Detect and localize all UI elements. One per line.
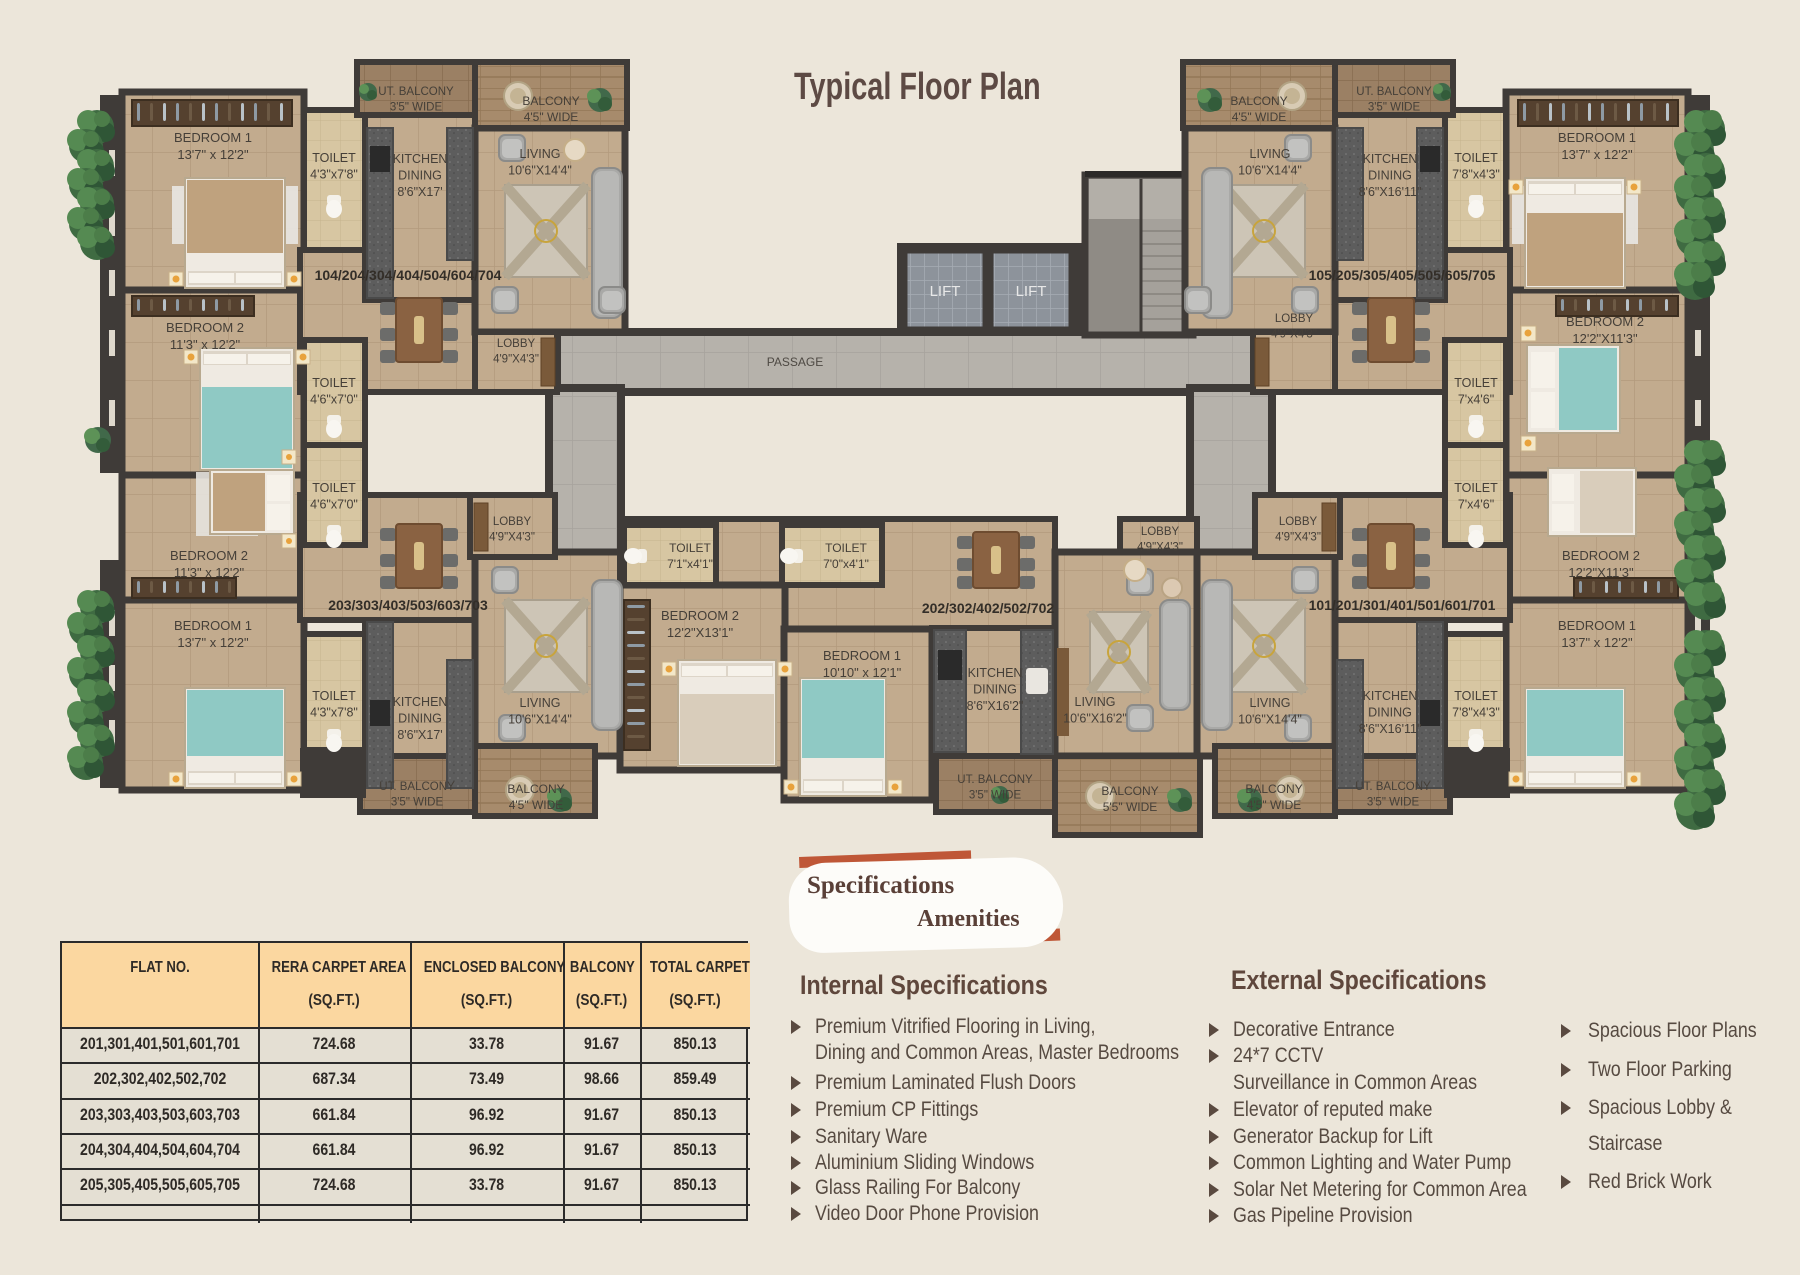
svg-text:TOILET: TOILET: [1454, 376, 1498, 390]
svg-text:202/302/402/502/702: 202/302/402/502/702: [922, 600, 1055, 616]
svg-text:13'7" x 12'2": 13'7" x 12'2": [1561, 147, 1633, 162]
svg-text:LIVING: LIVING: [520, 147, 561, 161]
svg-text:UT. BALCONY: UT. BALCONY: [957, 774, 1033, 786]
svg-text:5'5" WIDE: 5'5" WIDE: [1103, 800, 1158, 814]
svg-text:BALCONY: BALCONY: [1245, 782, 1302, 796]
svg-text:105/205/305/405/505/605/705: 105/205/305/405/505/605/705: [1309, 267, 1496, 283]
svg-text:4'9"X4'3": 4'9"X4'3": [1275, 532, 1321, 544]
svg-text:3'5" WIDE: 3'5" WIDE: [1367, 797, 1420, 809]
svg-text:7'8"x4'3": 7'8"x4'3": [1452, 168, 1500, 182]
svg-text:203/303/403/503/603/703: 203/303/403/503/603/703: [328, 597, 488, 613]
svg-text:10'6"X14'4": 10'6"X14'4": [1238, 164, 1302, 178]
svg-text:BALCONY: BALCONY: [1101, 784, 1158, 798]
svg-text:LIFT: LIFT: [930, 283, 961, 300]
svg-text:7'1"x4'1": 7'1"x4'1": [667, 557, 713, 571]
svg-text:4'9"X4'3": 4'9"X4'3": [1271, 329, 1317, 341]
svg-text:DINING: DINING: [1368, 706, 1412, 720]
svg-text:4'5" WIDE: 4'5" WIDE: [1232, 110, 1287, 124]
svg-text:LIFT: LIFT: [1016, 283, 1047, 300]
svg-text:DINING: DINING: [398, 169, 442, 183]
svg-text:DINING: DINING: [398, 712, 442, 726]
svg-text:4'3"x7'8": 4'3"x7'8": [310, 706, 358, 720]
svg-text:KITCHEN: KITCHEN: [393, 152, 448, 166]
svg-text:UT. BALCONY: UT. BALCONY: [379, 781, 455, 793]
svg-text:4'5" WIDE: 4'5" WIDE: [1247, 798, 1302, 812]
svg-text:BEDROOM 2: BEDROOM 2: [166, 320, 244, 335]
svg-text:7'x4'6": 7'x4'6": [1458, 498, 1494, 512]
svg-text:UT. BALCONY: UT. BALCONY: [378, 86, 454, 98]
svg-text:TOILET: TOILET: [312, 481, 356, 495]
svg-text:7'8"x4'3": 7'8"x4'3": [1452, 706, 1500, 720]
svg-text:3'5" WIDE: 3'5" WIDE: [1368, 102, 1421, 114]
svg-text:DINING: DINING: [973, 683, 1017, 697]
svg-text:KITCHEN: KITCHEN: [393, 695, 448, 709]
svg-text:4'3"x7'8": 4'3"x7'8": [310, 168, 358, 182]
svg-text:4'9"X4'3": 4'9"X4'3": [489, 532, 535, 544]
svg-text:10'6"X14'4": 10'6"X14'4": [1238, 713, 1302, 727]
svg-text:TOILET: TOILET: [669, 541, 711, 555]
svg-text:4'9"X4'3": 4'9"X4'3": [1137, 542, 1183, 554]
svg-text:LIVING: LIVING: [1250, 696, 1291, 710]
svg-text:3'5" WIDE: 3'5" WIDE: [969, 790, 1022, 802]
svg-text:LOBBY: LOBBY: [493, 516, 532, 528]
svg-text:11'3" x 12'2": 11'3" x 12'2": [170, 337, 241, 352]
svg-text:KITCHEN: KITCHEN: [1363, 152, 1418, 166]
svg-text:LOBBY: LOBBY: [1275, 313, 1314, 325]
svg-text:BALCONY: BALCONY: [507, 782, 564, 796]
svg-text:TOILET: TOILET: [825, 541, 867, 555]
svg-text:4'9"X4'3": 4'9"X4'3": [493, 354, 539, 366]
svg-text:TOILET: TOILET: [312, 376, 356, 390]
svg-text:10'6"X16'2": 10'6"X16'2": [1063, 712, 1127, 726]
svg-text:BEDROOM 1: BEDROOM 1: [823, 648, 901, 663]
svg-text:12'2"X11'3": 12'2"X11'3": [1568, 565, 1634, 580]
svg-text:7'x4'6": 7'x4'6": [1458, 393, 1494, 407]
svg-text:101/201/301/401/501/601/701: 101/201/301/401/501/601/701: [1309, 597, 1496, 613]
svg-text:104/204/304/404/504/604/704: 104/204/304/404/504/604/704: [315, 267, 502, 283]
svg-text:8'6"X17': 8'6"X17': [397, 185, 442, 199]
svg-text:13'7" x 12'2": 13'7" x 12'2": [1561, 635, 1633, 650]
svg-text:11'3" x 12'2": 11'3" x 12'2": [174, 565, 245, 580]
svg-text:10'10" x 12'1": 10'10" x 12'1": [823, 665, 902, 680]
svg-text:BEDROOM 2: BEDROOM 2: [170, 548, 248, 563]
svg-text:BEDROOM 1: BEDROOM 1: [174, 130, 252, 145]
svg-text:TOILET: TOILET: [1454, 689, 1498, 703]
svg-text:3'5" WIDE: 3'5" WIDE: [390, 102, 443, 114]
svg-text:BEDROOM 1: BEDROOM 1: [1558, 130, 1636, 145]
svg-text:13'7" x 12'2": 13'7" x 12'2": [177, 147, 249, 162]
svg-text:LOBBY: LOBBY: [497, 338, 536, 350]
svg-text:BALCONY: BALCONY: [522, 94, 579, 108]
svg-text:4'5" WIDE: 4'5" WIDE: [509, 798, 564, 812]
svg-text:LOBBY: LOBBY: [1141, 526, 1180, 538]
svg-text:LIVING: LIVING: [520, 696, 561, 710]
svg-text:8'6"X16'11": 8'6"X16'11": [1359, 185, 1422, 199]
svg-text:UT. BALCONY: UT. BALCONY: [1356, 86, 1432, 98]
svg-text:8'6"X16'11": 8'6"X16'11": [1359, 722, 1422, 736]
svg-text:BEDROOM 2: BEDROOM 2: [1562, 548, 1640, 563]
svg-text:4'6"x7'0": 4'6"x7'0": [310, 393, 358, 407]
svg-text:BEDROOM 2: BEDROOM 2: [661, 608, 739, 623]
svg-text:TOILET: TOILET: [1454, 151, 1498, 165]
svg-text:4'5" WIDE: 4'5" WIDE: [524, 110, 579, 124]
svg-text:8'6"X17': 8'6"X17': [397, 728, 442, 742]
svg-text:13'7" x 12'2": 13'7" x 12'2": [177, 635, 249, 650]
svg-text:KITCHEN: KITCHEN: [1363, 689, 1418, 703]
svg-text:LOBBY: LOBBY: [1279, 516, 1318, 528]
svg-text:3'5" WIDE: 3'5" WIDE: [391, 797, 444, 809]
svg-text:7'0"x4'1": 7'0"x4'1": [823, 557, 869, 571]
svg-text:DINING: DINING: [1368, 169, 1412, 183]
svg-text:12'2"X11'3": 12'2"X11'3": [1572, 331, 1638, 346]
svg-text:4'6"x7'0": 4'6"x7'0": [310, 498, 358, 512]
svg-text:LIVING: LIVING: [1075, 695, 1116, 709]
svg-text:TOILET: TOILET: [312, 689, 356, 703]
svg-text:LIVING: LIVING: [1250, 147, 1291, 161]
svg-text:BEDROOM 1: BEDROOM 1: [174, 618, 252, 633]
svg-text:TOILET: TOILET: [1454, 481, 1498, 495]
svg-text:UT. BALCONY: UT. BALCONY: [1355, 781, 1431, 793]
svg-text:BALCONY: BALCONY: [1230, 94, 1287, 108]
svg-text:PASSAGE: PASSAGE: [767, 355, 823, 369]
svg-text:8'6"X16'2": 8'6"X16'2": [967, 699, 1024, 713]
svg-text:12'2"X13'1": 12'2"X13'1": [667, 625, 734, 640]
svg-text:TOILET: TOILET: [312, 151, 356, 165]
svg-text:BEDROOM 1: BEDROOM 1: [1558, 618, 1636, 633]
svg-text:10'6"X14'4": 10'6"X14'4": [508, 164, 572, 178]
svg-text:BEDROOM 2: BEDROOM 2: [1566, 314, 1644, 329]
svg-text:KITCHEN: KITCHEN: [968, 666, 1023, 680]
svg-text:10'6"X14'4": 10'6"X14'4": [508, 713, 572, 727]
